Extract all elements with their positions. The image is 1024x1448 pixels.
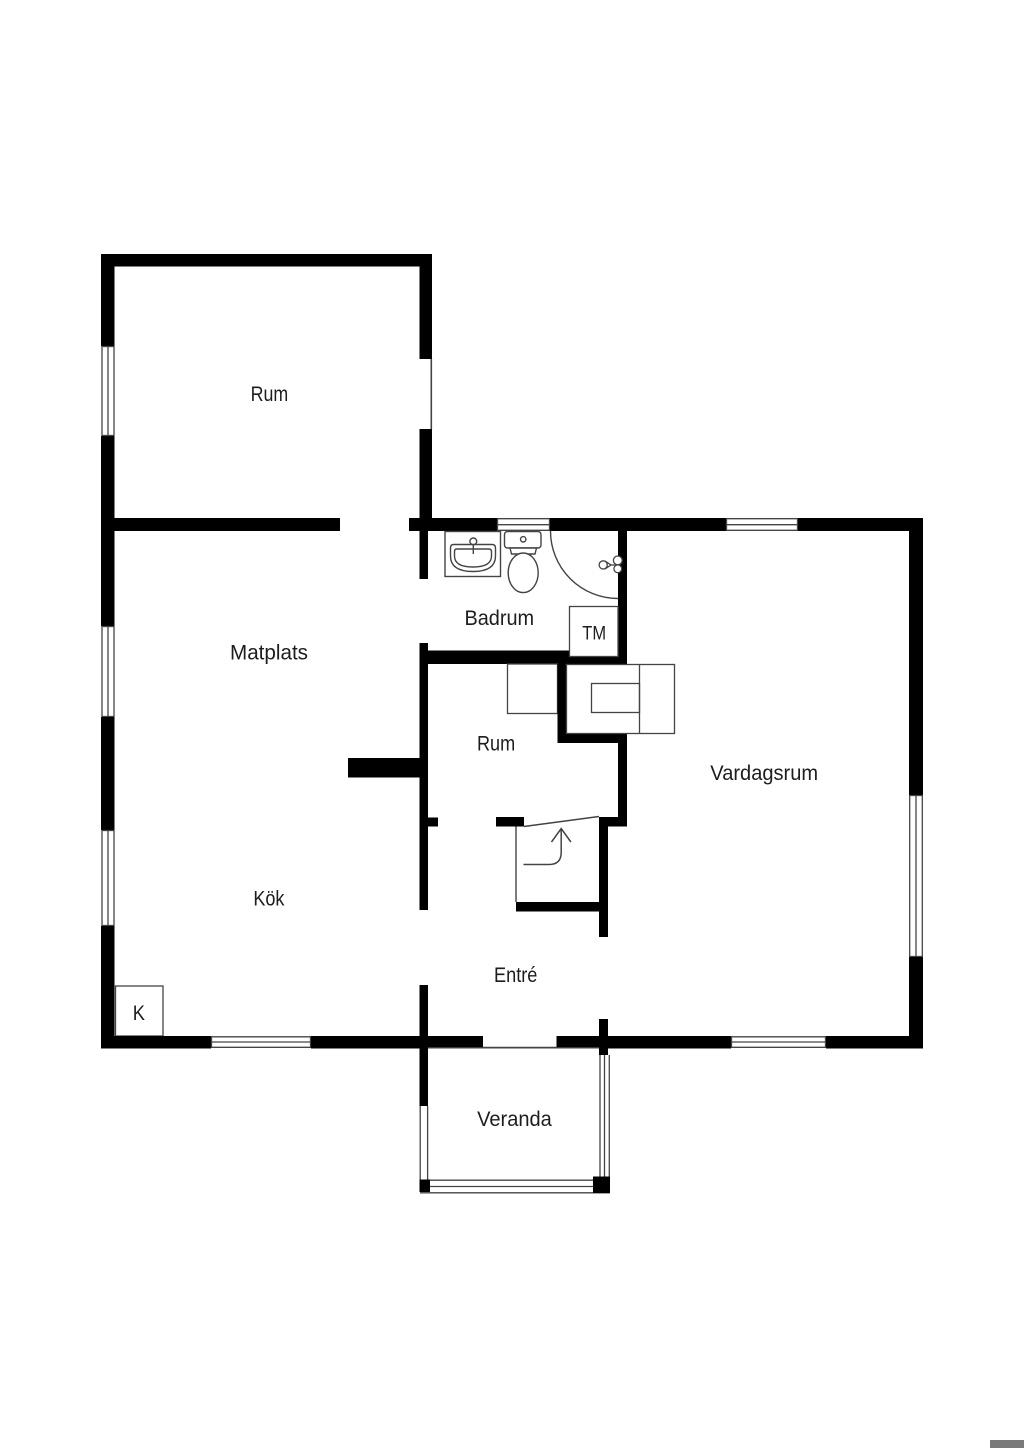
svg-text:K: K <box>133 1001 146 1025</box>
svg-text:Rum: Rum <box>477 732 515 756</box>
svg-text:Matplats: Matplats <box>230 641 308 665</box>
svg-text:Entré: Entré <box>494 963 537 987</box>
svg-text:Rum: Rum <box>251 382 289 406</box>
svg-text:Veranda: Veranda <box>477 1107 552 1131</box>
svg-text:TM: TM <box>582 624 606 645</box>
svg-text:Badrum: Badrum <box>464 606 534 630</box>
svg-text:Vardagsrum: Vardagsrum <box>710 761 818 785</box>
svg-text:Kök: Kök <box>253 887 284 911</box>
